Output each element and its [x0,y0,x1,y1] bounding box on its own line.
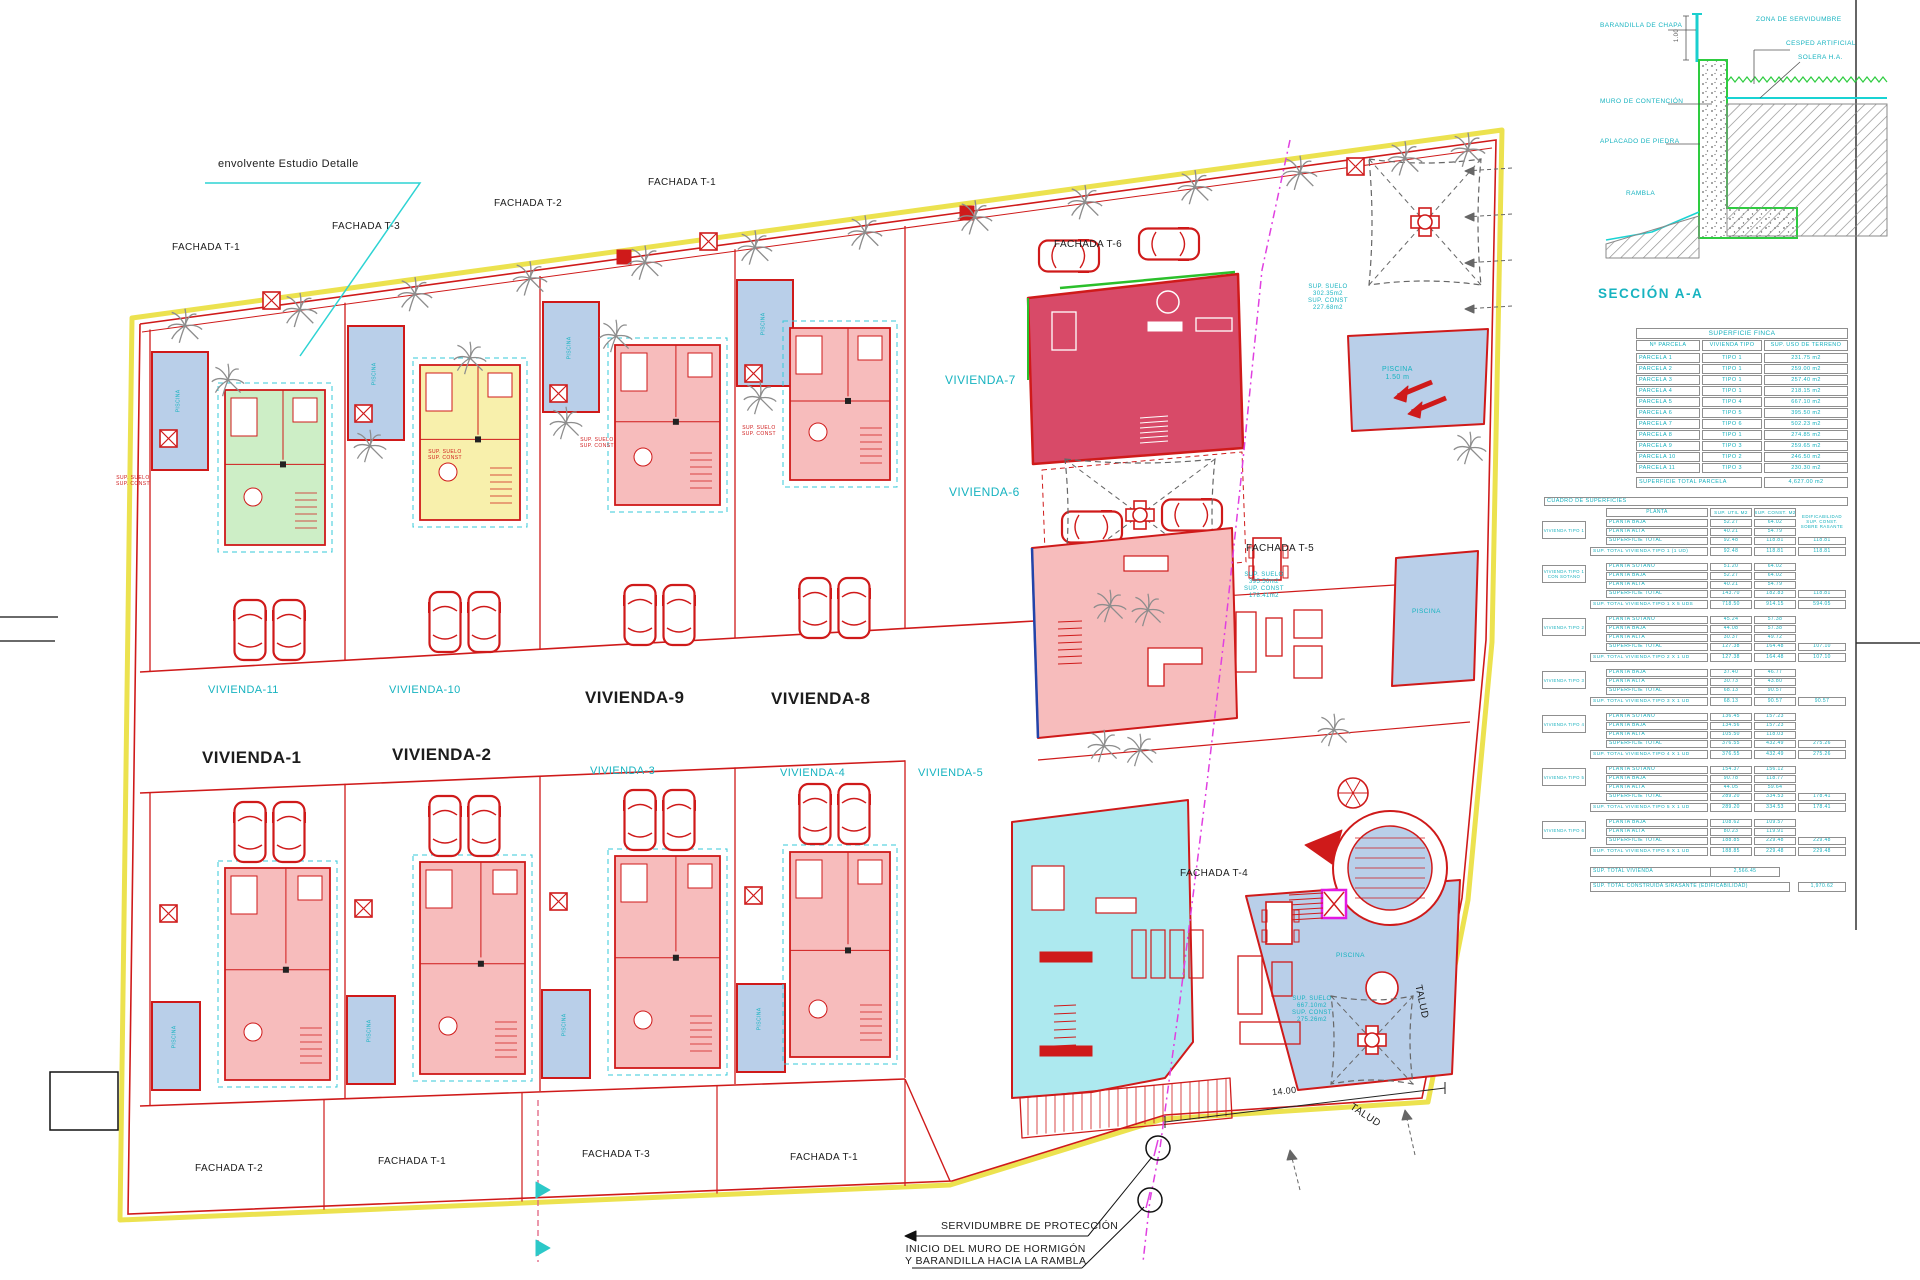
table-cell: 154.37 [1710,766,1752,774]
table-cell: 4,627.00 m2 [1764,477,1848,488]
table-cell: 54.79 [1754,528,1796,536]
piscina-label-bottom: PISCINA [1336,952,1365,960]
table-cell: TIPO 2 [1702,452,1762,462]
table-cell: 432.49 [1754,750,1796,759]
table-cell: VIVIENDA TIPO 1 [1542,521,1586,539]
table-cell: 188.85 [1710,847,1752,856]
table-cell: 178.41 [1798,793,1846,801]
table-cell: PLANTA ALTA [1606,528,1708,536]
pool-label: PISCINA [173,1025,179,1048]
site-plan-sheet: envolvente Estudio Detalle FACHADA T-1 F… [0,0,1920,1280]
table-cell: 275.26 [1798,750,1846,759]
table-cell: TIPO 1 [1702,430,1762,440]
table-cell: 229.48 [1798,847,1846,856]
table-cell: 59.64 [1754,784,1796,792]
table-cell: 118.03 [1754,731,1796,739]
section-label-muro: MURO DE CONTENCIÓN [1600,98,1683,106]
table-cell: 80.23 [1710,828,1752,836]
table-cell: VIVIENDA TIPO 2 [1542,618,1586,636]
vivienda-11-label: VIVIENDA-11 [208,684,279,697]
table-cell: 164.48 [1754,653,1796,662]
table-cell: VIVIENDA TIPO 3 [1542,671,1586,689]
table-cell: 64.02 [1754,563,1796,571]
servidumbre-note: SERVIDUMBRE DE PROTECCIÓN [941,1220,1118,1232]
table-cell: 127.38 [1710,643,1752,651]
table-cell: 188.85 [1710,837,1752,845]
table-cell: 594.05 [1798,600,1846,609]
table-cell: PLANTA ALTA [1606,784,1708,792]
table-cell: 90.57 [1754,697,1796,706]
vivienda-6-label: VIVIENDA-6 [949,486,1020,500]
table-cell: TIPO 6 [1702,419,1762,429]
table-cell: 45.24 [1710,616,1752,624]
table-cell: PLANTA SOTANO [1606,766,1708,774]
pool-label: PISCINA [373,362,379,385]
table-cell: SUPERFICIE TOTAL [1606,537,1708,545]
table-cell: 218.15 m2 [1764,386,1848,396]
table-cell: VIVIENDA TIPO 6 [1542,821,1586,839]
table-cell: PARCELA 8 [1636,430,1700,440]
vivienda-4-label: VIVIENDA-4 [780,767,845,780]
table-cell: 156.12 [1754,766,1796,774]
vivienda-5-label: VIVIENDA-5 [918,767,983,780]
table-cell: Nº PARCELA [1636,340,1700,351]
table-cell: 64.02 [1754,572,1796,580]
table-cell: TIPO 1 [1702,386,1762,396]
table-cell: TIPO 1 [1702,353,1762,363]
table-cell: SUP. TOTAL VIVIENDA TIPO 4 X 1 UD [1590,750,1708,759]
table-cell: SUP. UTIL M2 [1710,508,1752,517]
table-cell: CUADRO DE SUPERFICIES [1544,497,1848,506]
table-cell: 231.75 m2 [1764,353,1848,363]
table-cell: 92.48 [1710,537,1752,545]
table-cell: PLANTA ALTA [1606,581,1708,589]
table-cell: PARCELA 2 [1636,364,1700,374]
table-cell: 2,566.45 [1710,867,1780,877]
table-cell: TIPO 3 [1702,441,1762,451]
fachada-t3-bottom: FACHADA T-3 [582,1149,650,1161]
table-cell: PARCELA 6 [1636,408,1700,418]
table-cell: 52.27 [1710,519,1752,527]
table-cell: 257.40 m2 [1764,375,1848,385]
table-cell: 259.00 m2 [1764,364,1848,374]
table-cell: SUP. USO DE TERRENO [1764,340,1848,351]
table-cell: VIVIENDA TIPO 5 [1542,768,1586,786]
table-cell: SUPERFICIE FINCA [1636,328,1848,339]
table-cell: 40.21 [1710,581,1752,589]
table-cell: 127.38 [1710,653,1752,662]
fachada-t3-top: FACHADA T-3 [332,221,400,233]
table-cell: 289.20 [1710,803,1752,812]
piscina-label-main: PISCINA 1.50 m [1382,366,1413,382]
table-cell: VIVIENDA TIPO 1 CON SOTANO [1542,565,1586,583]
table-cell: 105.50 [1710,731,1752,739]
table-cell: SUPERFICIE TOTAL [1606,793,1708,801]
table-cell: 275.26 [1798,740,1846,748]
table-cell: 118.81 [1754,537,1796,545]
table-cell: TIPO 1 [1702,364,1762,374]
table-cell: SUP. TOTAL VIVIENDA TIPO 5 X 1 UD [1590,803,1708,812]
table-cell: PARCELA 5 [1636,397,1700,407]
table-cell: SUPERFICIE TOTAL [1606,837,1708,845]
piscina-label-mid: PISCINA [1412,608,1441,616]
table-cell: PARCELA 11 [1636,463,1700,473]
table-cell: 164.48 [1754,643,1796,651]
table-cell: 334.53 [1754,793,1796,801]
table-cell: 157.23 [1754,722,1796,730]
section-label-rambla: RAMBLA [1626,190,1655,198]
fachada-t1-top: FACHADA T-1 [172,242,240,254]
table-cell: 334.53 [1754,803,1796,812]
section-dim: 1.00 [1674,29,1681,42]
table-cell: 157.23 [1754,713,1796,721]
table-cell: 64.02 [1754,519,1796,527]
table-cell: EDIFICABILIDAD SUP. CONST. SOBRE RASANTE [1798,508,1846,535]
sup-note-t6: SUP. SUELO 302.35m2 SUP. CONST 227.68m2 [1308,284,1348,312]
table-cell: PLANTA ALTA [1606,678,1708,686]
table-cell: PARCELA 9 [1636,441,1700,451]
table-cell: 118.81 [1798,547,1846,556]
pool-label: PISCINA [563,1013,569,1036]
vivienda-9-label: VIVIENDA-9 [585,688,684,708]
vivienda-1-label: VIVIENDA-1 [202,748,301,768]
pool-label: PISCINA [368,1019,374,1042]
table-cell: 68.13 [1710,697,1752,706]
section-label-servidumbre: ZONA DE SERVIDUMBRE [1756,16,1842,24]
sup-note-small-1: SUP. SUELO SUP. CONST [116,476,150,488]
table-cell: 30.73 [1710,678,1752,686]
vivienda-7-label: VIVIENDA-7 [945,374,1016,388]
table-cell: SUP. TOTAL VIVIENDA TIPO 1 X 5 UDS [1590,600,1708,609]
table-cell: 274.85 m2 [1764,430,1848,440]
section-label-solera: SOLERA H.A. [1798,54,1843,62]
table-cell: 136.45 [1710,713,1752,721]
table-cell: PLANTA SOTANO [1606,616,1708,624]
table-cell: PLANTA BAJA [1606,572,1708,580]
table-cell: TIPO 4 [1702,397,1762,407]
vivienda-8-label: VIVIENDA-8 [771,689,870,709]
table-cell: 229.48 [1798,837,1846,845]
table-cell: SUP. TOTAL CONSTRUIDA S/RASANTE (EDIFICA… [1590,882,1790,892]
table-cell: 246.50 m2 [1764,452,1848,462]
table-cell: PLANTA BAJA [1606,775,1708,783]
table-cell: 178.41 [1798,803,1846,812]
table-cell: 57.38 [1754,616,1796,624]
pool-label: PISCINA [177,389,183,412]
table-cell: 52.27 [1710,572,1752,580]
table-cell: 43.80 [1754,678,1796,686]
sup-note-small-4: SUP. SUELO SUP. CONST [742,426,776,438]
table-cell: PLANTA BAJA [1606,722,1708,730]
table-cell: 718.50 [1710,600,1752,609]
table-cell: 229.48 [1754,847,1796,856]
section-label-cesped: CESPED ARTIFICIAL [1786,40,1856,48]
table-cell: SUPERFICIE TOTAL [1606,643,1708,651]
table-cell: 57.38 [1754,625,1796,633]
fachada-t1b-bottom: FACHADA T-1 [790,1152,858,1164]
table-cell: 376.55 [1710,750,1752,759]
table-cell: PLANTA BAJA [1606,625,1708,633]
table-cell: 30.37 [1710,634,1752,642]
table-cell: PLANTA [1606,508,1708,517]
table-cell: SUP. TOTAL VIVIENDA TIPO 6 X 1 UD [1590,847,1708,856]
table-cell: 118.77 [1754,775,1796,783]
sup-note-t4: SUP. SUELO 667.10m2 SUP. CONST 275.26m2 [1292,996,1332,1024]
table-cell: 182.83 [1754,590,1796,598]
table-cell: PLANTA SOTANO [1606,563,1708,571]
table-cell: 90.57 [1754,687,1796,695]
table-cell: 46.77 [1754,669,1796,677]
table-cell: 502.23 m2 [1764,419,1848,429]
table-cell: 90.78 [1710,775,1752,783]
table-cell: 44.08 [1710,625,1752,633]
table-cell: PLANTA ALTA [1606,634,1708,642]
pool-label: PISCINA [568,336,574,359]
table-cell: 1,970.62 [1798,882,1846,892]
table-cell: PLANTA BAJA [1606,669,1708,677]
table-cell: 118.81 [1798,537,1846,545]
table-cell: 134.56 [1710,722,1752,730]
table-cell: 143.70 [1710,590,1752,598]
table-cell: 118.81 [1798,590,1846,598]
envolvente-label: envolvente Estudio Detalle [218,158,359,171]
table-cell: 229.48 [1754,837,1796,845]
vivienda-10-label: VIVIENDA-10 [389,684,461,697]
table-cell: PLANTA BAJA [1606,519,1708,527]
section-label-barandilla: BARANDILLA DE CHAPA [1600,22,1682,30]
table-cell: VIVIENDA TIPO [1702,340,1762,351]
vivienda-3-label: VIVIENDA-3 [590,765,655,778]
table-cell: TIPO 1 [1702,375,1762,385]
table-cell: 119.91 [1754,828,1796,836]
table-cell: SUPERFICIE TOTAL [1606,687,1708,695]
table-cell: 107.10 [1798,643,1846,651]
section-label-aplacado: APLACADO DE PIEDRA [1600,138,1679,146]
muro-note: INICIO DEL MURO DE HORMIGÓN Y BARANDILLA… [905,1243,1086,1267]
table-cell: 108.62 [1710,819,1752,827]
table-cell: TIPO 5 [1702,408,1762,418]
fachada-t1-bottom: FACHADA T-1 [378,1156,446,1168]
table-cell: 92.48 [1710,547,1752,556]
table-cell: SUP. TOTAL VIVIENDA TIPO 2 X 1 UD [1590,653,1708,662]
table-cell: PARCELA 4 [1636,386,1700,396]
table-cell: SUP. TOTAL VIVIENDA TIPO 1 (1 UD) [1590,547,1708,556]
sup-note-t5: SUP. SUELO 395.50m2 SUP. CONST 178.41m2 [1244,572,1284,600]
sup-note-small-3: SUP. SUELO SUP. CONST [580,438,614,450]
table-cell: 667.10 m2 [1764,397,1848,407]
table-cell: 376.55 [1710,740,1752,748]
table-cell: 109.57 [1754,819,1796,827]
table-cell: 68.13 [1710,687,1752,695]
sup-note-small-2: SUP. SUELO SUP. CONST [428,450,462,462]
pool-label: PISCINA [762,312,768,335]
fachada-t2-bottom: FACHADA T-2 [195,1163,263,1175]
vivienda-2-label: VIVIENDA-2 [392,745,491,765]
fachada-t2-top: FACHADA T-2 [494,198,562,210]
table-cell: 37.40 [1710,669,1752,677]
section-title: SECCIÓN A-A [1598,286,1703,302]
table-cell: 44.05 [1710,784,1752,792]
table-cell: PARCELA 7 [1636,419,1700,429]
table-cell: 40.21 [1710,528,1752,536]
table-cell: SUP. TOTAL VIVIENDA TIPO 3 X 1 UD [1590,697,1708,706]
table-cell: PLANTA BAJA [1606,819,1708,827]
pool-label: PISCINA [758,1007,764,1030]
fachada-t1b-top: FACHADA T-1 [648,177,716,189]
table-cell: 107.10 [1798,653,1846,662]
table-cell: 914.15 [1754,600,1796,609]
table-cell: PARCELA 10 [1636,452,1700,462]
fachada-t4: FACHADA T-4 [1180,868,1248,880]
table-cell: PLANTA ALTA [1606,731,1708,739]
table-cell: PLANTA SOTANO [1606,713,1708,721]
table-cell: TIPO 3 [1702,463,1762,473]
table-cell: 289.20 [1710,793,1752,801]
table-cell: 51.20 [1710,563,1752,571]
table-cell: VIVIENDA TIPO 4 [1542,715,1586,733]
table-cell: 54.79 [1754,581,1796,589]
table-cell: 49.72 [1754,634,1796,642]
table-cell: 230.30 m2 [1764,463,1848,473]
table-cell: 118.81 [1754,547,1796,556]
table-cell: PARCELA 1 [1636,353,1700,363]
table-cell: PLANTA ALTA [1606,828,1708,836]
fachada-t6: FACHADA T-6 [1054,239,1122,251]
table-cell: 90.57 [1798,697,1846,706]
table-cell: 432.49 [1754,740,1796,748]
fachada-t5: FACHADA T-5 [1246,543,1314,555]
table-cell: SUP. CONST. M2 [1754,508,1796,517]
table-cell: 395.50 m2 [1764,408,1848,418]
table-cell: SUPERFICIE TOTAL [1606,590,1708,598]
table-cell: SUPERFICIE TOTAL [1606,740,1708,748]
table-cell: PARCELA 3 [1636,375,1700,385]
table-cell: SUPERFICIE TOTAL PARCELA [1636,477,1762,488]
table-cell: 259.65 m2 [1764,441,1848,451]
